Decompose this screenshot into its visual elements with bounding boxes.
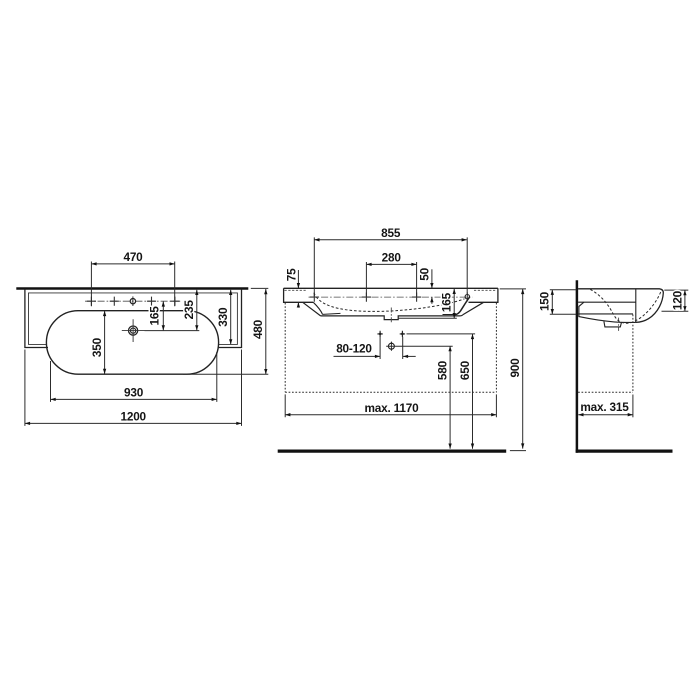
svg-text:350: 350 xyxy=(90,337,104,357)
svg-text:75: 75 xyxy=(284,268,298,281)
svg-text:165: 165 xyxy=(148,306,162,326)
svg-text:120: 120 xyxy=(670,290,684,310)
svg-text:165: 165 xyxy=(440,292,454,312)
svg-text:50: 50 xyxy=(417,267,431,280)
svg-text:480: 480 xyxy=(251,319,265,339)
svg-text:80-120: 80-120 xyxy=(336,341,372,355)
svg-text:930: 930 xyxy=(124,385,144,399)
svg-text:235: 235 xyxy=(182,300,196,320)
svg-text:280: 280 xyxy=(382,251,402,265)
svg-text:max. 315: max. 315 xyxy=(580,400,629,414)
svg-text:150: 150 xyxy=(537,291,551,311)
svg-text:max. 1170: max. 1170 xyxy=(365,401,420,415)
svg-text:855: 855 xyxy=(381,226,401,240)
svg-text:900: 900 xyxy=(508,358,522,378)
svg-text:330: 330 xyxy=(216,307,230,327)
svg-text:580: 580 xyxy=(436,360,450,380)
svg-text:1200: 1200 xyxy=(120,410,146,424)
svg-text:470: 470 xyxy=(123,250,143,264)
svg-text:650: 650 xyxy=(458,360,472,380)
